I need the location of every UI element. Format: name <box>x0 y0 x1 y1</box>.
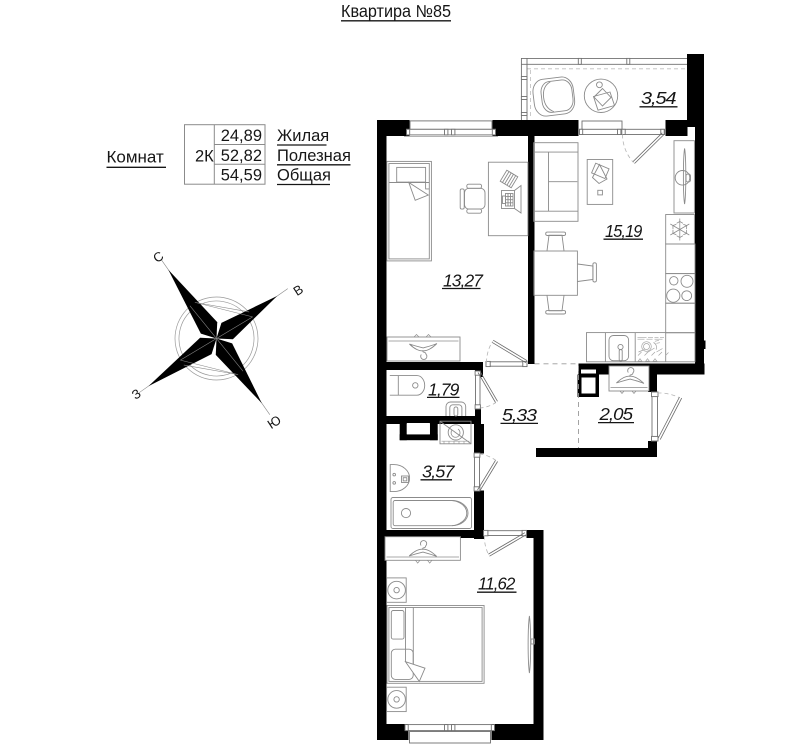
svg-text:Комнат: Комнат <box>107 148 165 167</box>
svg-text:2К: 2К <box>195 148 214 166</box>
svg-text:Квартира №85: Квартира №85 <box>341 1 451 21</box>
svg-text:1,79: 1,79 <box>428 380 460 400</box>
svg-text:Полезная: Полезная <box>277 147 351 165</box>
svg-text:11,62: 11,62 <box>478 574 516 594</box>
svg-text:52,82: 52,82 <box>221 147 262 165</box>
svg-text:54,59: 54,59 <box>221 167 262 185</box>
svg-text:Общая: Общая <box>277 167 331 185</box>
svg-text:5,33: 5,33 <box>502 405 537 425</box>
svg-text:24,89: 24,89 <box>221 127 262 145</box>
svg-text:2,05: 2,05 <box>598 404 633 424</box>
svg-text:3,57: 3,57 <box>422 462 456 482</box>
svg-text:Жилая: Жилая <box>277 127 329 145</box>
svg-text:15,19: 15,19 <box>605 221 643 241</box>
svg-text:13,27: 13,27 <box>443 271 484 291</box>
svg-text:3,54: 3,54 <box>641 88 677 108</box>
